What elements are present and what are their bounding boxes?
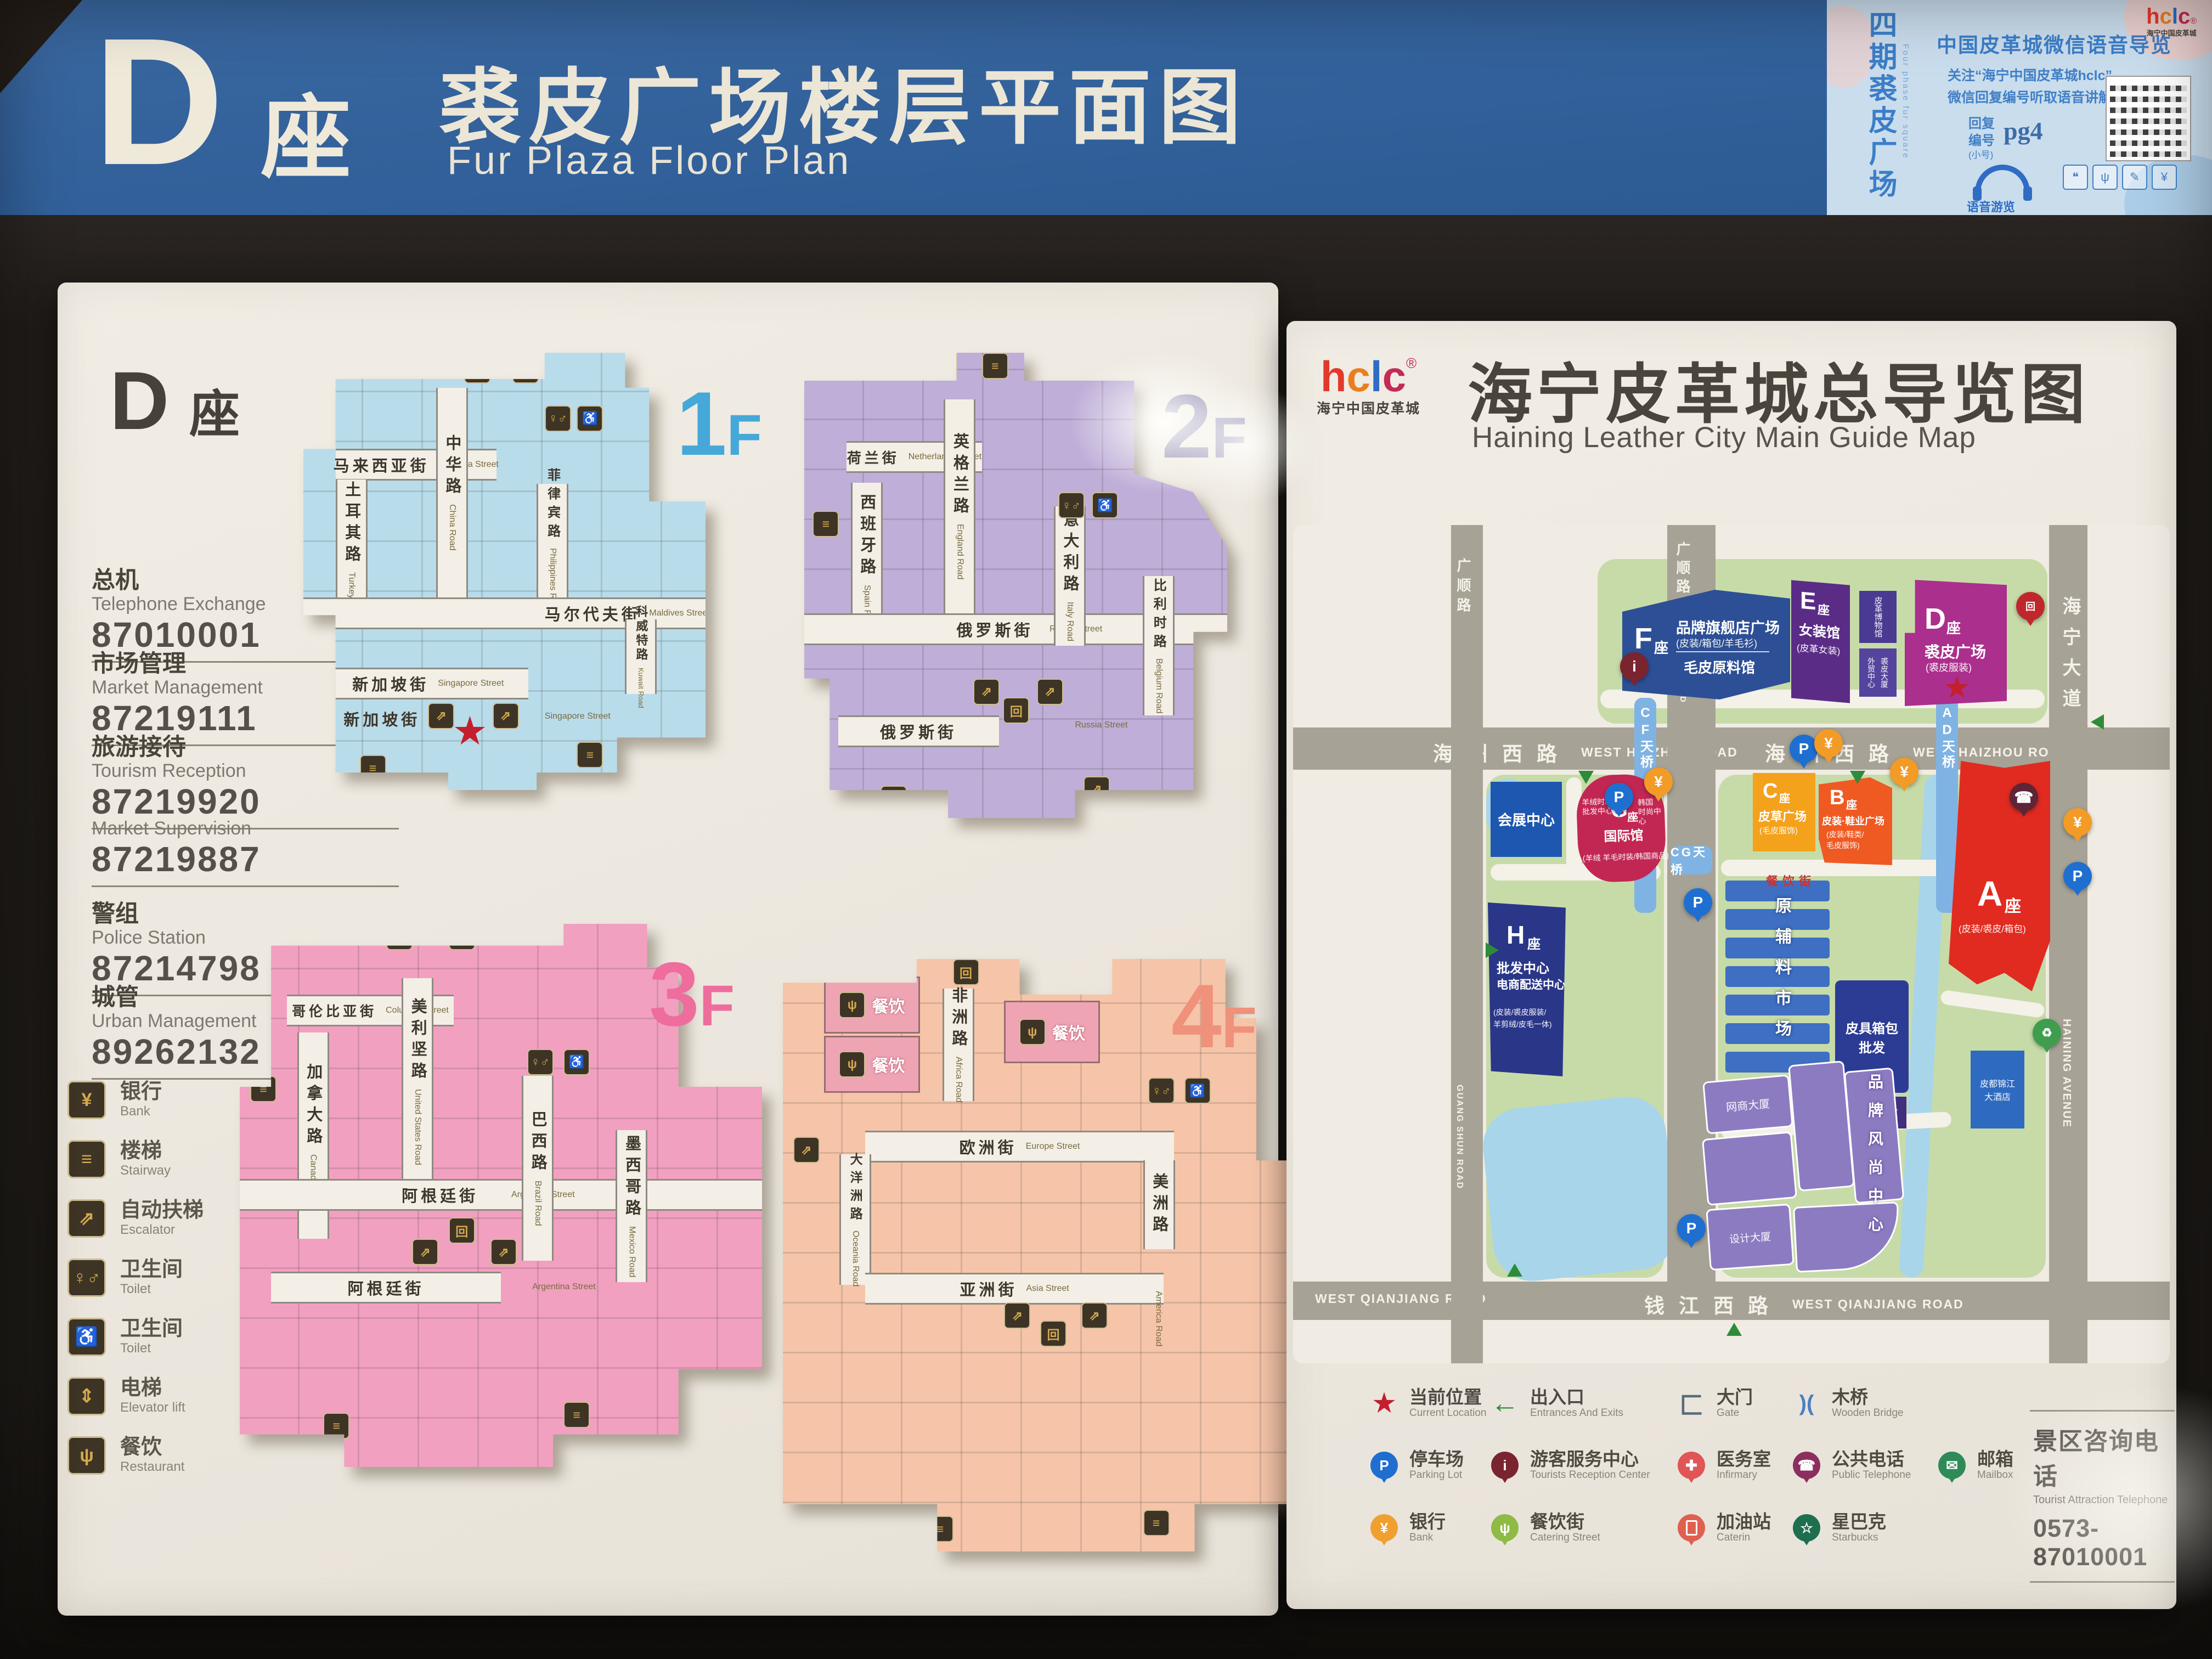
info-pin: i [1620, 652, 1649, 681]
reply-label2: 编号 [1968, 129, 1995, 149]
info-icon: i [1491, 1452, 1519, 1479]
banner-subtitle: Fur Plaza Floor Plan [447, 138, 851, 183]
street-united-states: 美利坚路United States Road [402, 978, 433, 1184]
parking-pin: P [2063, 862, 2092, 890]
maplegend-reception: i 游客服务中心Tourists Reception Center [1489, 1450, 1650, 1481]
guide-icon: ✎ [2122, 165, 2147, 190]
card-vertical-subtitle: Four phase fur square [1901, 44, 1910, 160]
restaurant-icon: ψ [67, 1436, 106, 1475]
floorplan-1f: 马来西亚街Malaysia Street 土耳其路Turkey Road 中华路… [303, 353, 706, 790]
floor-label-3f: 3F [649, 949, 735, 1040]
street-malaysia: 马来西亚街Malaysia Street [336, 449, 496, 481]
stairs-icon: ≡ [1030, 959, 1056, 985]
chat-icon: ❝ [2063, 165, 2088, 190]
red-packet-icon: ¥ [2152, 165, 2177, 190]
bank-icon: ¥ [1370, 1514, 1398, 1542]
building-fashion-block [1702, 1131, 1797, 1206]
floor-plan-board: D 座 总机Telephone Exchange87010001 市场管理Mar… [58, 283, 1278, 1616]
catering-street-label: 餐饮街 [1766, 872, 1815, 889]
elevator-icon: 回 [931, 353, 957, 379]
maplegend-entrances: ← 出入口Entrances And Exits [1489, 1388, 1623, 1419]
legend-restaurant: ψ 餐饮Restaurant [67, 1436, 184, 1475]
catering-icon: ψ [1491, 1514, 1519, 1542]
escalator-icon: ⇗ [793, 1137, 820, 1163]
building-expo-center: 会展中心 [1491, 782, 1562, 857]
street-mexico: 墨西哥路Mexico Road [616, 1130, 647, 1282]
stairs-icon: ≡ [360, 755, 386, 781]
street-kuwait: 科威特路Kuwait Road [625, 619, 657, 693]
elevator-icon: 回 [1040, 1321, 1066, 1347]
elevator-icon: 回 [1003, 697, 1029, 724]
reply-label1: 回复 [1968, 112, 1995, 132]
legend-accessible-toilet: ♿ 卫生间Toilet [67, 1318, 183, 1356]
escalator-icon: ⇗ [67, 1199, 106, 1238]
road-guangshun-west: 广顺路 GUANG SHUN ROAD [1451, 525, 1483, 1363]
parking-icon: P [1370, 1452, 1398, 1479]
entrance-arrow [1850, 771, 1865, 792]
maplegend-catering-street: ψ 餐饮街Catering Street [1489, 1513, 1600, 1544]
bank-icon: ¥ [67, 1081, 106, 1119]
building-d: D 座 裘皮广场 (裘皮服装) ★ [1905, 580, 2007, 706]
toilet-icon: ♀♂ [527, 1049, 554, 1075]
audio-guide-heading: 中国皮革城微信语音导览 [1937, 29, 2172, 58]
street-argentina-mid: 阿根廷街 Argentina Street [240, 1179, 762, 1211]
entrance-arrow [1578, 771, 1594, 792]
bank-pin: ¥ [1814, 729, 1843, 758]
legend-toilet: ♀♂ 卫生间Toilet [67, 1259, 183, 1297]
board-building-letter: D [110, 359, 169, 442]
maplegend-starbucks: ☆ 星巴克Starbucks [1791, 1513, 1886, 1544]
elevator-icon: ⇕ [67, 1377, 106, 1415]
stairs-icon: ≡ [577, 742, 603, 768]
hclc-logo-subtext: 海宁中国皮革城 [1317, 398, 1420, 417]
gate-icon: 匚 [1676, 1388, 1707, 1419]
escalator-icon: ⇗ [1081, 1302, 1108, 1329]
building-c: C 座 皮草广场 (毛皮服饰) [1753, 773, 1815, 851]
stairs-icon: ≡ [812, 511, 839, 537]
building-ecommerce-tower: 网商大厦 [1702, 1074, 1793, 1134]
board-building-suffix: 座 [189, 390, 240, 440]
accessible-toilet-icon: ♿ [1092, 492, 1118, 518]
building-hotel: 皮都锦江 大酒店 [1971, 1051, 2024, 1128]
maplegend-gate: 匚 大门Gate [1676, 1388, 1753, 1419]
entrance-arrow [1507, 1256, 1522, 1277]
bank-pin: ¥ [1644, 768, 1673, 796]
building-e: E 座 女装馆 (皮革女装) [1791, 580, 1850, 703]
maplegend-current-location: ★ 当前位置Current Location [1369, 1388, 1486, 1419]
floor-label-4f: 4F [1171, 971, 1257, 1062]
guide-map-board: hclc® 海宁中国皮革城 海宁皮革城总导览图 Haining Leather … [1286, 321, 2176, 1609]
toilet-icon: ♀♂ [1058, 492, 1085, 518]
stairs-icon: ≡ [1143, 1510, 1170, 1536]
street-russia-lower: 俄罗斯街 [838, 715, 999, 747]
escalator-icon: ⇗ [973, 679, 1000, 705]
escalator-icon: ⇗ [490, 1239, 517, 1265]
legend-stairway: ≡ 楼梯Stairway [67, 1140, 171, 1178]
top-banner: D 座 裘皮广场楼层平面图 Fur Plaza Floor Plan [0, 0, 1827, 219]
mall-logo-pin: 回 [2016, 592, 2045, 620]
street-singapore-upper: 新加坡街Singapore Street [328, 668, 529, 699]
floor-label-1f: 1F [676, 379, 762, 469]
street-belgium: 比利时路Belgium Road [1143, 576, 1175, 715]
toilet-icon: ♀♂ [1148, 1077, 1175, 1104]
building-trade-center: 外贸中心 裘皮大厦 [1859, 648, 1897, 697]
street-china: 中华路China Road [436, 388, 468, 598]
street-america: 美洲路 [1143, 1160, 1175, 1249]
parking-pin: P [1684, 888, 1712, 917]
street-england: 英格兰路England Road [944, 399, 975, 613]
maplegend-public-telephone: ☎ 公共电话Public Telephone [1791, 1450, 1911, 1481]
maplegend-infirmary: ✚ 医务室Infirmary [1676, 1450, 1771, 1481]
stairs-icon: ≡ [927, 1516, 953, 1542]
stairs-icon: ≡ [512, 357, 539, 383]
restaurant-icon: ψ [839, 992, 865, 1018]
starbucks-icon: ☆ [1793, 1514, 1820, 1542]
parking-pin: P [1790, 735, 1818, 763]
escalator-icon: ⇗ [428, 703, 454, 729]
maplegend-gas-station: 加油站Caterin [1676, 1513, 1771, 1544]
street-philippines: 菲律宾路Philippines Road [537, 484, 568, 597]
stairs-icon: ≡ [323, 1413, 349, 1439]
legend-escalator: ⇗ 自动扶梯Escalator [67, 1199, 204, 1238]
legend-elevator: ⇕ 电梯Elevator lift [67, 1377, 185, 1415]
bridge-icon: )( [1791, 1388, 1822, 1419]
escalator-icon: ⇗ [1037, 679, 1063, 705]
current-location-star: ★ [452, 712, 488, 751]
stairs-icon: ≡ [67, 1140, 106, 1178]
road-haining-avenue: 海宁大道 HAINING AVENUE [2049, 525, 2087, 1363]
accessible-toilet-icon: ♿ [67, 1318, 106, 1356]
elevator-icon: 回 [464, 357, 490, 383]
banner-building-suffix: 座 [261, 93, 351, 184]
bridge-cg: CG天桥 [1671, 846, 1712, 874]
accessible-toilet-icon: ♿ [563, 1049, 590, 1075]
audio-caption: 语音游览 [1967, 198, 2015, 215]
elevator-icon: 回 [953, 959, 979, 985]
cutlery-icon: ψ [2092, 165, 2118, 190]
building-design-tower: 设计大厦 [1706, 1204, 1794, 1271]
reply-note: (小号) [1968, 147, 1993, 161]
banner-building-letter: D [93, 11, 224, 192]
street-brazil: 巴西路Brazil Road [522, 1076, 554, 1261]
maplegend-wooden-bridge: )( 木桥Wooden Bridge [1791, 1388, 1904, 1419]
bank-pin: ¥ [1890, 758, 1918, 786]
toilet-icon: ♀♂ [545, 405, 571, 432]
street-argentina-lower: 阿根廷街 [271, 1272, 501, 1304]
mailbox-icon: ✉ [1938, 1452, 1966, 1479]
street-italy: 意大利路Italy Road [1054, 506, 1086, 646]
mini-icon-row: ❝ ψ ✎ ¥ [2063, 165, 2177, 190]
restaurant-area: ψ 餐饮 [1004, 1001, 1100, 1063]
infirmary-icon: ✚ [1678, 1452, 1705, 1479]
legend-bank: ¥ 银行Bank [67, 1081, 162, 1119]
reply-code: pg4 [2004, 116, 2043, 145]
elevator-icon: 回 [449, 1217, 475, 1244]
site-map: 海州西路 WEST HAIZHOU ROAD 海州西路 WEST HAIZHOU… [1293, 525, 2170, 1363]
qr-code [2107, 77, 2190, 160]
accessible-toilet-icon: ♿ [577, 405, 603, 432]
audio-guide-line2: 微信回复编号听取语音讲解 [1948, 87, 2112, 106]
recycle-pin: ♻ [2033, 1019, 2061, 1047]
restaurant-area: ψ 餐饮 [824, 1036, 920, 1092]
stairs-icon: ≡ [250, 1076, 276, 1102]
stairs-icon: ≡ [881, 786, 907, 812]
street-europe: 欧洲街Europe Street [865, 1131, 1174, 1163]
star-icon: ★ [1369, 1388, 1400, 1419]
maplegend-bank: ¥ 银行Bank [1369, 1513, 1446, 1544]
escalator-icon: ⇗ [493, 703, 519, 729]
building-leather-museum: 皮革博物馆 [1859, 591, 1897, 643]
hclc-logo: hclc® 海宁中国皮革城 [1317, 355, 1420, 417]
wechat-audio-guide-card: 四期裘皮广场 Four phase fur square hclc® 海宁中国皮… [1827, 0, 2212, 215]
parking-pin: P [1605, 783, 1633, 811]
telephone-pin: ☎ [2010, 783, 2038, 811]
building-h: H 座 批发中心 电商配送中心 (皮装/裘皮服装/ 羊剪绒/皮毛一体) [1488, 902, 1566, 1076]
maplegend-mailbox: ✉ 邮箱Mailbox [1937, 1450, 2013, 1481]
gas-icon [1678, 1514, 1705, 1542]
escalator-icon: ⇗ [412, 1239, 438, 1265]
street-oceania: 大洋洲路Oceania Road [839, 1154, 871, 1285]
bank-pin: ¥ [2063, 808, 2092, 837]
escalator-icon: ⇗ [1004, 1302, 1030, 1329]
stairs-icon: ≡ [563, 1402, 590, 1428]
parking-pin: P [1677, 1214, 1706, 1243]
elevator-icon: 回 [386, 924, 413, 950]
audio-guide-line1: 关注“海宁中国皮革城hclc” [1948, 65, 2112, 84]
building-f: F 座 品牌旗舰店广场 (皮装/箱包/羊毛衫) 毛皮原料馆 [1622, 590, 1790, 699]
restaurant-icon: ψ [839, 1051, 865, 1077]
street-singapore-lower: 新加坡街 [343, 707, 420, 730]
street-asia: 亚洲街Asia Street [865, 1273, 1164, 1305]
tourist-hotline: 景区咨询电话 Tourist Attraction Telephone 0573… [2030, 1410, 2175, 1583]
entrance-arrow [1726, 1315, 1742, 1336]
entrance-arrow [1486, 943, 1506, 958]
current-location-star: ★ [1943, 672, 1971, 703]
headphones-icon [1975, 165, 2030, 195]
stairs-icon: ≡ [449, 924, 475, 950]
escalator-icon: ⇗ [1084, 776, 1110, 803]
toilet-icon: ♀♂ [67, 1259, 106, 1297]
contact-market-supervision: 市场监管Market Supervision87219887 [92, 818, 399, 887]
entrance-arrow [2083, 714, 2104, 730]
accessible-toilet-icon: ♿ [1184, 1077, 1211, 1104]
street-africa: 非洲路Africa Road [943, 989, 974, 1101]
fashion-center-label: 品牌风尚中心 [1864, 1074, 1886, 1245]
photo-corner-shadow [0, 0, 82, 93]
restaurant-area: ψ 餐饮 [824, 977, 920, 1033]
card-vertical-title: 四期裘皮广场 [1860, 10, 1901, 201]
restaurant-icon: ψ [1019, 1019, 1046, 1045]
road-west-qianjiang: WEST QIANJIANG ROAD 钱江西路 WEST QIANJIANG … [1293, 1282, 2170, 1320]
telephone-icon: ☎ [1793, 1452, 1820, 1479]
signboard-photo: D 座 裘皮广场楼层平面图 Fur Plaza Floor Plan 四期裘皮广… [0, 0, 2212, 1659]
maplegend-parking: P 停车场Parking Lot [1369, 1450, 1464, 1481]
arrow-icon: ← [1489, 1388, 1520, 1419]
guide-map-subtitle: Haining Leather City Main Guide Map [1472, 421, 1976, 454]
floor-label-2f: 2F [1161, 381, 1247, 472]
stairs-icon: ≡ [982, 353, 1008, 379]
